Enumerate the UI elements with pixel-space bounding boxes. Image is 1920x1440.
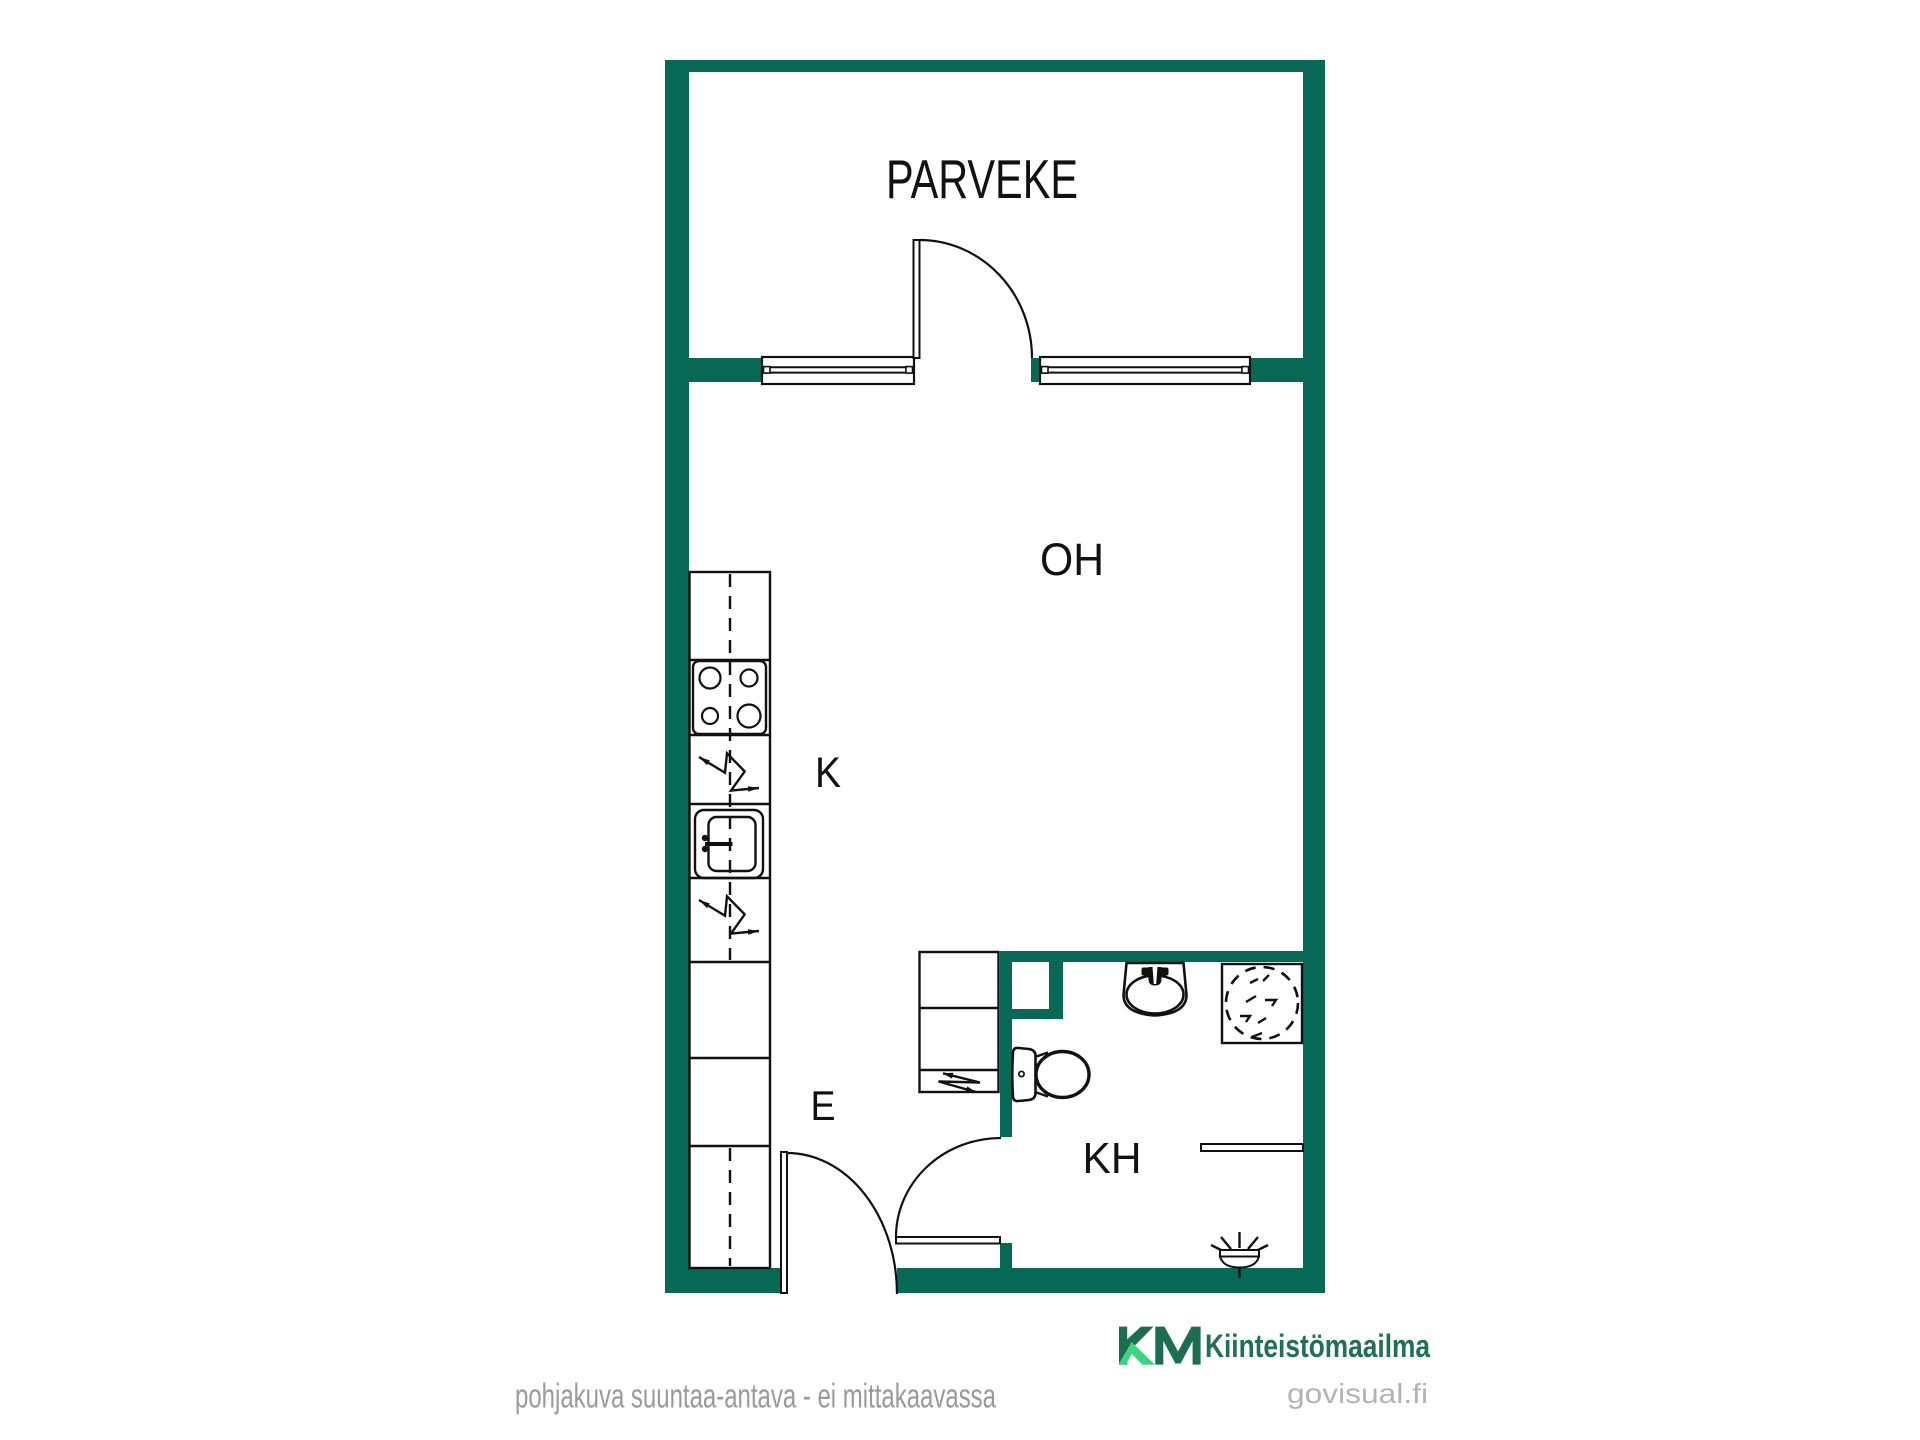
svg-text:PARVEKE: PARVEKE — [886, 148, 1078, 210]
svg-text:KH: KH — [1083, 1135, 1142, 1183]
svg-text:govisual.fi: govisual.fi — [1287, 1378, 1428, 1409]
svg-text:OH: OH — [1040, 534, 1104, 585]
svg-text:K: K — [815, 749, 841, 797]
svg-text:E: E — [811, 1082, 836, 1129]
svg-text:pohjakuva suuntaa-antava - ei: pohjakuva suuntaa-antava - ei mittakaava… — [515, 1378, 996, 1416]
svg-text:Kiinteistömaailma: Kiinteistömaailma — [1205, 1328, 1430, 1364]
